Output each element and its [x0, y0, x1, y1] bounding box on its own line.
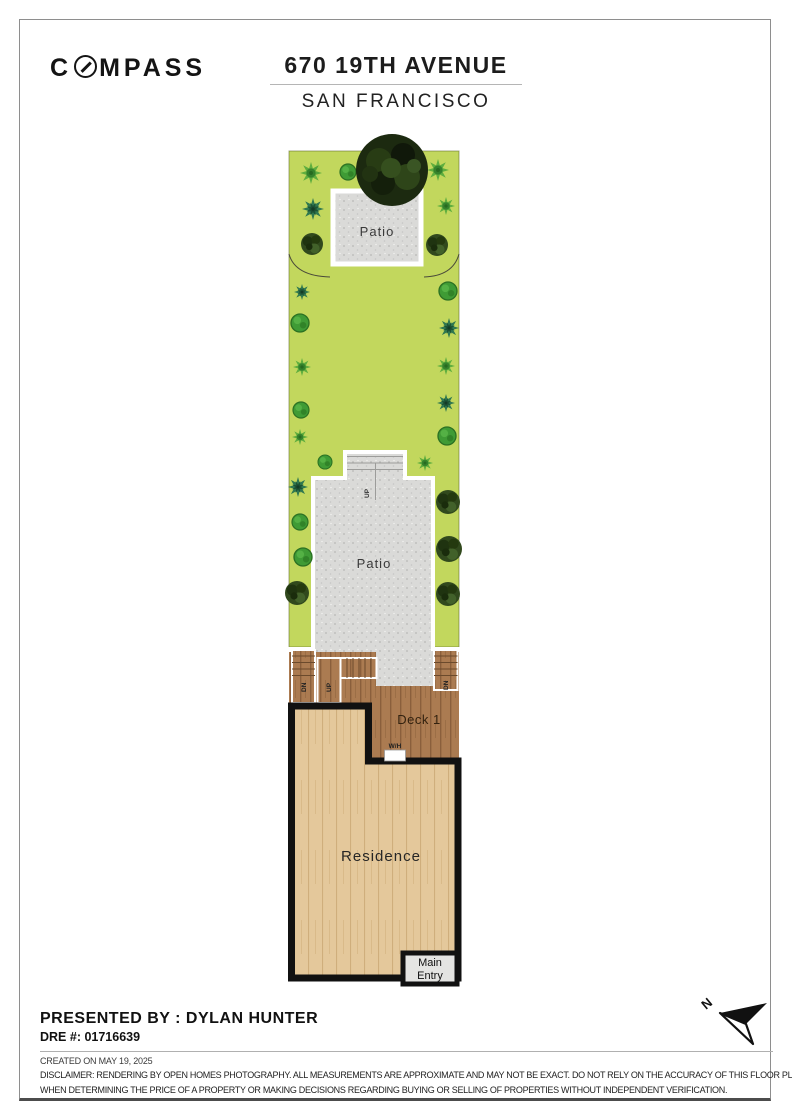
bush-icon [291, 314, 309, 332]
bush-icon [436, 490, 460, 514]
bush-icon [437, 357, 455, 375]
disclaimer-line-2: WHEN DETERMINING THE PRICE OF A PROPERTY… [40, 1085, 727, 1095]
bush-icon [285, 581, 309, 605]
patio-top-label: Patio [360, 224, 395, 239]
bush-icon [426, 234, 448, 256]
footer-divider [40, 1051, 773, 1052]
bush-icon [300, 162, 322, 184]
main-entry-label-1: Main [418, 957, 442, 969]
bush-icon [302, 198, 324, 220]
stairs-right-down: DN [434, 650, 458, 690]
bush-icon [294, 548, 312, 566]
bush-icon [292, 429, 308, 445]
bush-icon [437, 197, 455, 215]
north-label: N [698, 995, 715, 1013]
stairs-right-dn-label: DN [443, 680, 450, 690]
bush-icon [292, 514, 308, 530]
bush-icon [437, 394, 455, 412]
main-entry: Main Entry [403, 953, 457, 984]
bush-icon [436, 536, 462, 562]
bush-icon [439, 282, 457, 300]
stairs-left-down: DN [292, 650, 315, 703]
site-plan: Patio UP Patio [0, 0, 792, 1120]
stairs-middle-up-label: UP [326, 682, 333, 692]
dre-number: DRE #: 01716639 [40, 1030, 140, 1044]
bush-icon [427, 159, 449, 181]
bush-icon [301, 233, 323, 255]
deck-label: Deck 1 [397, 712, 440, 727]
water-heater-label: W/H [389, 743, 402, 750]
residence-label: Residence [341, 848, 421, 865]
patio-stair-up-label: UP [364, 488, 371, 498]
bush-icon [288, 477, 308, 497]
large-tree-icon [356, 134, 428, 206]
bush-icon [293, 402, 309, 418]
bush-icon [436, 582, 460, 606]
bush-icon [438, 427, 456, 445]
north-arrow-icon: N [698, 995, 767, 1044]
disclaimer-line-1: DISCLAIMER: RENDERING BY OPEN HOMES PHOT… [40, 1070, 792, 1080]
bush-icon [439, 318, 459, 338]
bush-icon [340, 164, 356, 180]
bush-icon [417, 455, 433, 471]
patio-middle-label: Patio [357, 556, 392, 571]
bush-icon [293, 358, 311, 376]
stairs-left-dn-label: DN [301, 682, 308, 692]
created-date: CREATED ON MAY 19, 2025 [40, 1056, 152, 1066]
bush-icon [318, 455, 332, 469]
presented-by: PRESENTED BY : DYLAN HUNTER [40, 1010, 318, 1028]
patio-between-stairs [376, 652, 434, 686]
floor-plan-page: CMPASS 670 19TH AVENUE SAN FRANCISCO [0, 0, 792, 1120]
main-entry-label-2: Entry [417, 970, 443, 982]
water-heater-box [385, 750, 406, 761]
bush-icon [294, 284, 310, 300]
